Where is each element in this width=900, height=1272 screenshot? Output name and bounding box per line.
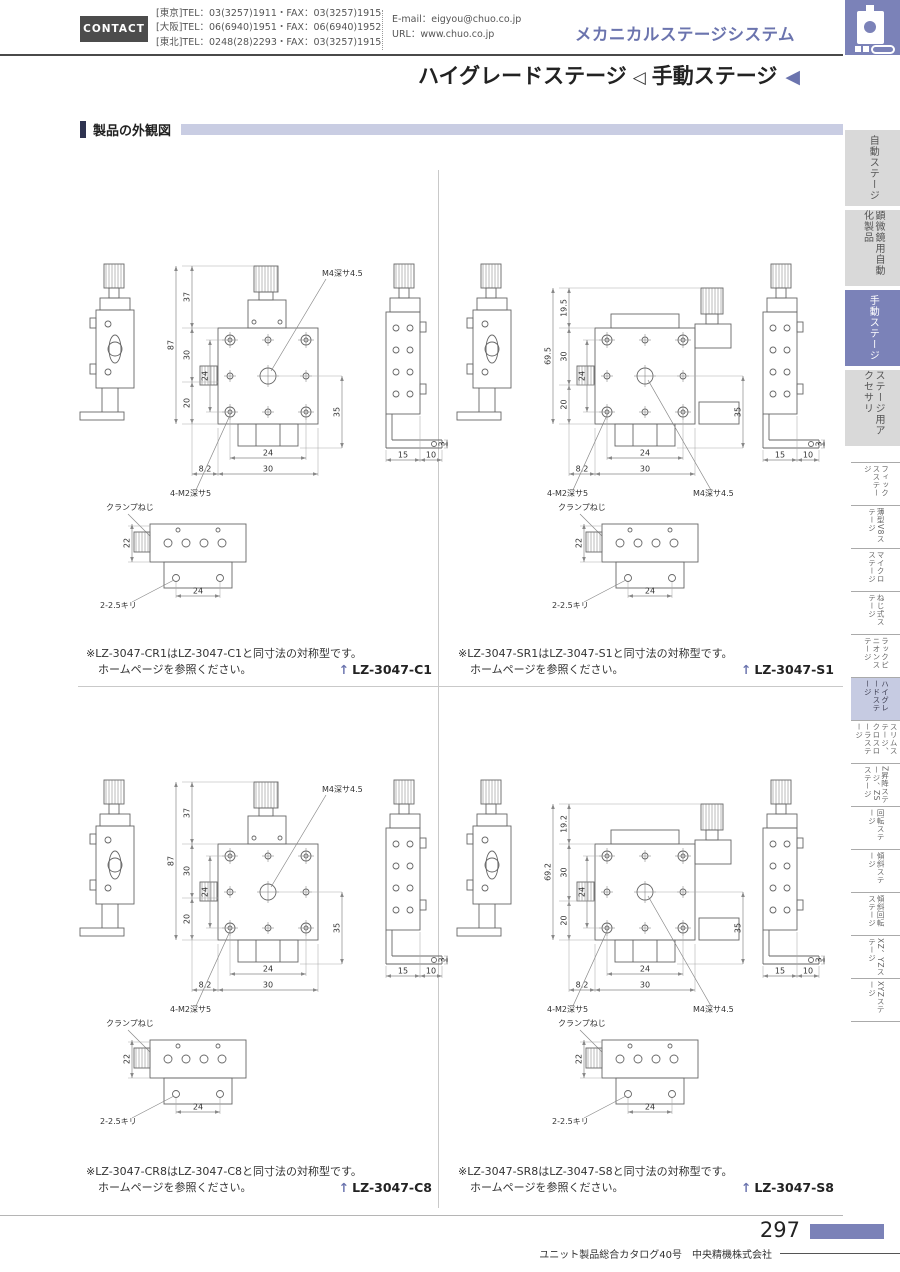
svg-text:24: 24 xyxy=(640,449,650,458)
up-arrow-icon: ↑ xyxy=(339,662,349,677)
svg-text:24: 24 xyxy=(201,371,210,381)
contact-url: URL：www.chuo.co.jp xyxy=(392,27,521,42)
up-arrow-icon: ↑ xyxy=(741,662,751,677)
svg-text:クランプねじ: クランプねじ xyxy=(106,1019,154,1028)
up-arrow-icon: ↑ xyxy=(741,1180,751,1195)
tech-drawing-lz-3047-c1: 87373020243524308.2M4深サ4.54-M2深サ515103クラ… xyxy=(78,252,448,617)
footer-end-rule xyxy=(780,1253,900,1254)
note-lz-3047-c8: ※LZ-3047-CR8はLZ-3047-C8と同寸法の対称型です。 ホームペー… xyxy=(86,1164,434,1196)
page-title-right: 手動ステージ xyxy=(652,64,778,88)
svg-text:24: 24 xyxy=(578,371,587,381)
svg-text:22: 22 xyxy=(575,538,584,548)
page-number-bar xyxy=(810,1224,884,1239)
note-line1: ※LZ-3047-CR1はLZ-3047-C1と同寸法の対称型です。 xyxy=(86,646,434,662)
note-lz-3047-s1: ※LZ-3047-SR1はLZ-3047-S1と同寸法の対称型です。 ホームペー… xyxy=(458,646,836,678)
svg-text:2-2.5キリ: 2-2.5キリ xyxy=(100,601,137,610)
sidebar-index-item-12[interactable]: XYZステージ xyxy=(851,979,900,1022)
svg-text:30: 30 xyxy=(560,351,569,361)
svg-text:10: 10 xyxy=(803,967,813,976)
page-title-left: ハイグレードステージ xyxy=(418,64,627,88)
svg-text:30: 30 xyxy=(183,866,192,876)
model-text: LZ-3047-S1 xyxy=(754,662,834,677)
svg-text:69.2: 69.2 xyxy=(544,863,553,881)
catalog-info: ユニット製品総合カタログ40号 中央精機株式会社 xyxy=(390,1246,772,1261)
svg-text:3: 3 xyxy=(438,441,447,446)
svg-text:30: 30 xyxy=(263,981,273,990)
svg-text:3: 3 xyxy=(815,441,824,446)
svg-text:8.2: 8.2 xyxy=(576,981,589,990)
sidebar-index-item-10[interactable]: 傾斜回転ステージ xyxy=(851,893,900,936)
svg-text:2-2.5キリ: 2-2.5キリ xyxy=(552,601,589,610)
phone-line-tohoku: [東北]TEL：0248(28)2293・FAX：03(3257)1915 xyxy=(156,36,381,50)
svg-text:35: 35 xyxy=(734,407,743,417)
svg-text:8.2: 8.2 xyxy=(199,465,212,474)
svg-text:2-2.5キリ: 2-2.5キリ xyxy=(552,1117,589,1126)
svg-text:8.2: 8.2 xyxy=(199,981,212,990)
svg-text:4-M2深サ5: 4-M2深サ5 xyxy=(547,489,588,498)
svg-text:24: 24 xyxy=(263,965,273,974)
svg-text:クランプねじ: クランプねじ xyxy=(106,503,154,512)
svg-text:M4深サ4.5: M4深サ4.5 xyxy=(322,785,363,794)
svg-text:24: 24 xyxy=(578,887,587,897)
model-text: LZ-3047-S8 xyxy=(754,1180,834,1195)
model-text: LZ-3047-C1 xyxy=(352,662,432,677)
sidebar-index-item-4[interactable]: ラックピニオンステージ xyxy=(851,635,900,678)
note-lz-3047-s8: ※LZ-3047-SR8はLZ-3047-S8と同寸法の対称型です。 ホームペー… xyxy=(458,1164,836,1196)
note-lz-3047-c1: ※LZ-3047-CR1はLZ-3047-C1と同寸法の対称型です。 ホームペー… xyxy=(86,646,434,678)
svg-text:4-M2深サ5: 4-M2深サ5 xyxy=(547,1005,588,1014)
svg-text:22: 22 xyxy=(575,1054,584,1064)
catalog-page: CONTACT [東京]TEL：03(3257)1911・FAX：03(3257… xyxy=(0,0,900,1272)
svg-text:24: 24 xyxy=(640,965,650,974)
svg-text:24: 24 xyxy=(193,1103,203,1112)
svg-text:35: 35 xyxy=(734,923,743,933)
sidebar-tab-1[interactable]: 顕微鏡用自動化製品 xyxy=(845,210,900,286)
svg-text:M4深サ4.5: M4深サ4.5 xyxy=(693,489,734,498)
svg-text:20: 20 xyxy=(560,399,569,409)
sidebar-index: フィックスステージ薄型V8ステージマイクロステージねじ式ステージラックピニオンス… xyxy=(851,462,900,1022)
sidebar-index-item-9[interactable]: 傾斜ステージ xyxy=(851,850,900,893)
phone-line-tokyo: [東京]TEL：03(3257)1911・FAX：03(3257)1915 xyxy=(156,7,381,21)
model-label: ↑LZ-3047-S8 xyxy=(741,1179,834,1197)
svg-text:37: 37 xyxy=(183,292,192,302)
svg-text:19.5: 19.5 xyxy=(560,299,569,317)
note-line1: ※LZ-3047-CR8はLZ-3047-C8と同寸法の対称型です。 xyxy=(86,1164,434,1180)
svg-text:24: 24 xyxy=(263,449,273,458)
svg-text:35: 35 xyxy=(333,923,342,933)
section-header: 製品の外観図 xyxy=(80,119,843,139)
svg-text:19.2: 19.2 xyxy=(560,815,569,833)
section-title: 製品の外観図 xyxy=(93,120,171,139)
svg-text:30: 30 xyxy=(560,867,569,877)
svg-text:30: 30 xyxy=(263,465,273,474)
svg-text:8.2: 8.2 xyxy=(576,465,589,474)
svg-text:24: 24 xyxy=(193,587,203,596)
svg-text:22: 22 xyxy=(123,538,132,548)
svg-text:20: 20 xyxy=(183,914,192,924)
model-text: LZ-3047-C8 xyxy=(352,1180,432,1195)
svg-text:2-2.5キリ: 2-2.5キリ xyxy=(100,1117,137,1126)
svg-text:10: 10 xyxy=(803,451,813,460)
svg-text:22: 22 xyxy=(123,1054,132,1064)
svg-text:3: 3 xyxy=(438,957,447,962)
page-title: ハイグレードステージ◁手動ステージ◀ xyxy=(0,60,800,90)
svg-text:30: 30 xyxy=(640,465,650,474)
svg-text:35: 35 xyxy=(333,407,342,417)
svg-text:87: 87 xyxy=(167,856,176,866)
svg-text:69.5: 69.5 xyxy=(544,347,553,365)
sidebar-index-item-11[interactable]: XZ、YZステージ xyxy=(851,936,900,979)
sidebar-tabs: 自動ステージ顕微鏡用自動化製品手動ステージステージ用アクセサリ xyxy=(845,130,900,450)
section-bar-icon xyxy=(80,121,86,138)
svg-text:クランプねじ: クランプねじ xyxy=(558,1019,606,1028)
page-number: 297 xyxy=(690,1218,800,1242)
sidebar-index-item-0[interactable]: フィックスステージ xyxy=(851,463,900,506)
svg-text:24: 24 xyxy=(201,887,210,897)
svg-text:15: 15 xyxy=(398,451,408,460)
svg-text:15: 15 xyxy=(398,967,408,976)
triangle-outline-icon: ◁ xyxy=(633,68,646,88)
sidebar-index-item-3[interactable]: ねじ式ステージ xyxy=(851,592,900,635)
svg-text:24: 24 xyxy=(645,587,655,596)
section-band xyxy=(181,124,843,135)
footer-rule xyxy=(0,1215,843,1216)
svg-text:15: 15 xyxy=(775,967,785,976)
svg-text:10: 10 xyxy=(426,451,436,460)
header-rule xyxy=(0,54,843,56)
contact-badge: CONTACT xyxy=(80,16,148,42)
sidebar-index-item-6[interactable]: スリムステージ、クロスローラステージ xyxy=(851,721,900,764)
svg-text:M4深サ4.5: M4深サ4.5 xyxy=(322,269,363,278)
contact-divider xyxy=(382,10,383,50)
sidebar-index-item-5[interactable]: ハイグレードステージ xyxy=(851,678,900,721)
svg-text:24: 24 xyxy=(645,1103,655,1112)
triangle-solid-icon: ◀ xyxy=(785,66,800,88)
svg-text:30: 30 xyxy=(183,350,192,360)
model-label: ↑LZ-3047-S1 xyxy=(741,661,834,679)
contact-email: E-mail：eigyou@chuo.co.jp xyxy=(392,12,521,27)
sidebar-index-item-1[interactable]: 薄型V8ステージ xyxy=(851,506,900,549)
stage-logo-icon xyxy=(845,0,900,55)
svg-text:30: 30 xyxy=(640,981,650,990)
contact-web-block: E-mail：eigyou@chuo.co.jp URL：www.chuo.co… xyxy=(392,12,521,42)
svg-text:3: 3 xyxy=(815,957,824,962)
sidebar-index-item-8[interactable]: 回転ステージ xyxy=(851,807,900,850)
svg-text:M4深サ4.5: M4深サ4.5 xyxy=(693,1005,734,1014)
sidebar-tab-3[interactable]: ステージ用アクセサリ xyxy=(845,370,900,446)
svg-text:37: 37 xyxy=(183,808,192,818)
svg-text:20: 20 xyxy=(560,915,569,925)
system-title: メカニカルステージシステム xyxy=(560,21,795,45)
svg-text:20: 20 xyxy=(183,398,192,408)
svg-text:4-M2深サ5: 4-M2深サ5 xyxy=(170,489,211,498)
svg-text:クランプねじ: クランプねじ xyxy=(558,503,606,512)
quadrant-divider-horizontal xyxy=(78,686,843,687)
model-label: ↑LZ-3047-C1 xyxy=(339,661,432,679)
svg-text:4-M2深サ5: 4-M2深サ5 xyxy=(170,1005,211,1014)
tech-drawing-lz-3047-s1: 69.519.53020243524308.2M4深サ4.54-M2深サ5151… xyxy=(455,252,825,617)
sidebar-index-item-2[interactable]: マイクロステージ xyxy=(851,549,900,592)
svg-text:10: 10 xyxy=(426,967,436,976)
sidebar-tab-2[interactable]: 手動ステージ xyxy=(845,290,900,366)
note-line1: ※LZ-3047-SR1はLZ-3047-S1と同寸法の対称型です。 xyxy=(458,646,836,662)
model-label: ↑LZ-3047-C8 xyxy=(339,1179,432,1197)
phone-line-osaka: [大阪]TEL：06(6940)1951・FAX：06(6940)1952 xyxy=(156,21,381,35)
svg-text:15: 15 xyxy=(775,451,785,460)
sidebar-index-item-7[interactable]: Z昇降ステージ、ZSステージ xyxy=(851,764,900,807)
sidebar-tab-0[interactable]: 自動ステージ xyxy=(845,130,900,206)
tech-drawing-lz-3047-s8: 69.219.23020243524308.2M4深サ4.54-M2深サ5151… xyxy=(455,768,825,1133)
up-arrow-icon: ↑ xyxy=(339,1180,349,1195)
tech-drawing-lz-3047-c8: 87373020243524308.2M4深サ4.54-M2深サ515103クラ… xyxy=(78,768,448,1133)
contact-phone-list: [東京]TEL：03(3257)1911・FAX：03(3257)1915 [大… xyxy=(156,7,381,50)
svg-text:87: 87 xyxy=(167,340,176,350)
brand-logo-icon xyxy=(845,0,900,55)
note-line1: ※LZ-3047-SR8はLZ-3047-S8と同寸法の対称型です。 xyxy=(458,1164,836,1180)
